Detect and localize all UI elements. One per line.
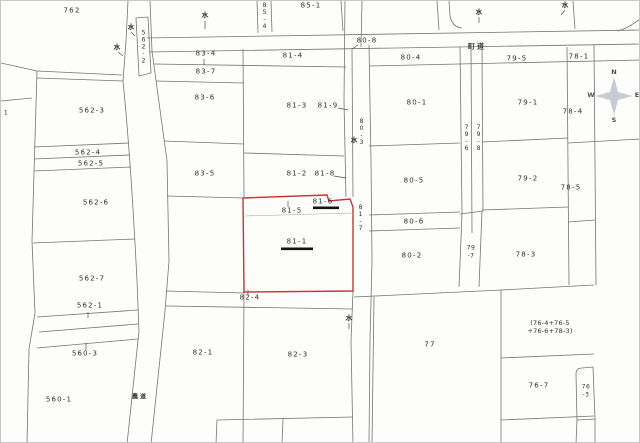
parcel-label-81-1-highlighted: 81-1 [287, 238, 308, 247]
parcel-label: 81-7 [357, 204, 363, 232]
parcel-label: 81-9 [318, 102, 339, 111]
parcel-label: 78-3 [516, 251, 537, 260]
labels-layer: 76285-185-4562-280-8町道83-481-480-479-578… [1, 1, 639, 442]
parcel-label: 79 -7 [467, 245, 476, 260]
cadastral-map: 76285-185-4562-280-8町道83-481-480-479-578… [0, 0, 640, 443]
parcel-label: 762 [64, 7, 81, 16]
parcel-label: 80-2 [402, 252, 423, 261]
water-mark: 水 [351, 136, 358, 144]
parcel-label: 78-1 [569, 53, 590, 62]
parcel-label: 81-8 [315, 170, 336, 179]
parcel-label: 81-4 [283, 52, 304, 61]
parcel-label: 562-1 [77, 302, 103, 311]
parcel-label: 77 [424, 341, 435, 350]
water-mark: 水 [202, 11, 209, 19]
parcel-label: 562-5 [78, 160, 104, 169]
parcel-label: 82-1 [193, 349, 214, 358]
parcel-label: 80-6 [404, 218, 425, 227]
parcel-label: 562-4 [75, 149, 101, 158]
parcel-label: 83-6 [195, 94, 216, 103]
parcel-label: 80-1 [407, 99, 428, 108]
parcel-label: 79-1 [518, 99, 539, 108]
parcel-label: 562-6 [83, 199, 109, 208]
parcel-label: 85-4 [261, 2, 267, 30]
parcel-label: 562-7 [79, 275, 105, 284]
water-mark: 水 [114, 43, 121, 51]
parcel-label: 79-2 [518, 175, 539, 184]
parcel-label: 79-5 [507, 55, 528, 64]
parcel-label: 83-7 [196, 68, 217, 77]
parcel-label: 85-1 [301, 2, 322, 11]
parcel-label: 81-2 [287, 170, 308, 179]
parcel-label: 81-3 [287, 102, 308, 111]
parcel-label: 562-3 [79, 107, 105, 116]
parcel-label: 79-8 [475, 124, 481, 152]
water-mark: 水 [562, 1, 569, 9]
parcel-label: 80-3 [358, 118, 364, 146]
parcel-label: 80-5 [404, 177, 425, 186]
parcel-label: 80-4 [401, 54, 422, 63]
water-mark: 水 [476, 8, 483, 16]
parcel-label: 562-2 [140, 30, 146, 65]
parcel-label: 79-6 [463, 124, 469, 152]
parcel-label: 78-4 [563, 108, 584, 117]
parcel-label: 560-3 [72, 350, 98, 359]
parcel-label: 78-5 [561, 184, 582, 193]
parcel-label: 83-5 [195, 170, 216, 179]
parcel-label: 83-4 [196, 50, 217, 59]
parcel-label: 76 -3 [582, 384, 591, 399]
parcel-label: 82-3 [288, 351, 309, 360]
parcel-label: 560-1 [46, 396, 72, 405]
road-label-nodo: 農道 [132, 393, 148, 401]
road-label-chodo: 町道 [468, 43, 486, 52]
water-mark: 水 [346, 314, 353, 322]
parcel-label: 1 [4, 109, 8, 117]
parcel-label: 82-4 [240, 294, 261, 303]
parcel-label: 76-7 [529, 382, 550, 391]
water-mark: 水 [128, 23, 135, 31]
parcel-label-81-6-underlined: 81-6 [313, 198, 334, 207]
parcel-label: 81-5 [282, 207, 303, 216]
parcel-label: 80-8 [357, 37, 378, 46]
parcel-label: (76-4+76-5 +76-6+78-3) [527, 319, 572, 335]
